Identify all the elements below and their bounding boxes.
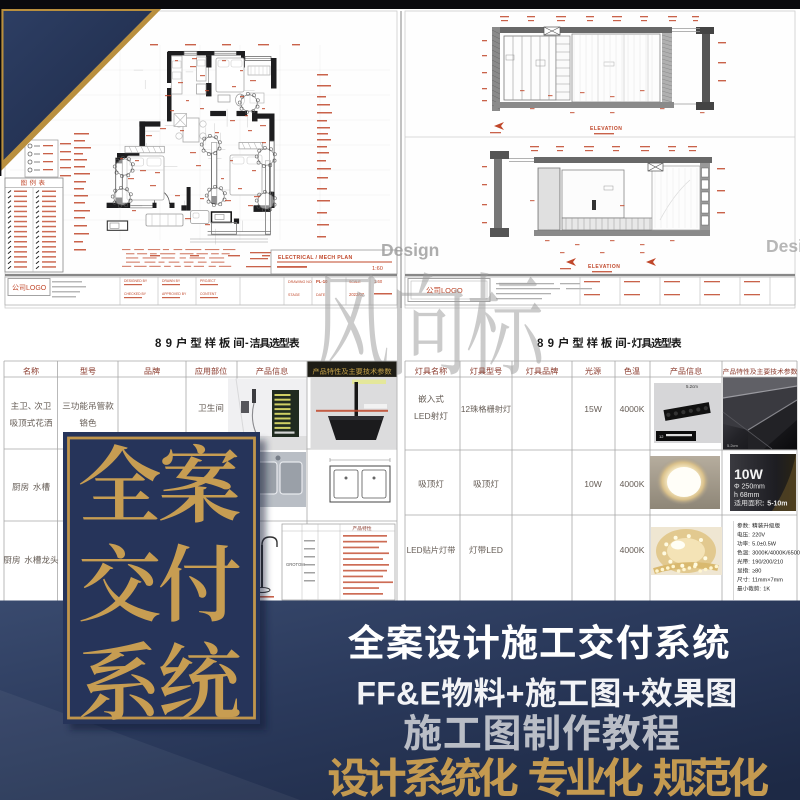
svg-text:Desi: Desi xyxy=(766,236,800,256)
svg-text:5-10m: 5-10m xyxy=(767,501,787,508)
svg-text:4000K: 4000K xyxy=(620,545,645,555)
svg-text:LOGO: LOGO xyxy=(26,285,47,292)
svg-text:LED: LED xyxy=(414,411,431,421)
svg-text:89: 89 xyxy=(537,338,558,350)
svg-text:15W: 15W xyxy=(584,404,603,414)
svg-text:+: + xyxy=(506,676,525,712)
svg-text:-: - xyxy=(627,337,631,349)
svg-text:Design: Design xyxy=(381,240,439,260)
svg-text:5.0±0.5W: 5.0±0.5W xyxy=(752,542,777,548)
svg-text:1K: 1K xyxy=(763,587,770,593)
svg-text:DATE: DATE xyxy=(316,293,326,297)
svg-text:1:60: 1:60 xyxy=(372,266,383,272)
svg-text:FF&E: FF&E xyxy=(356,676,441,712)
svg-text:5.2cm: 5.2cm xyxy=(686,384,698,389)
svg-text:≥80: ≥80 xyxy=(752,569,761,575)
svg-text:CONTENT: CONTENT xyxy=(200,292,216,296)
svg-text:220V: 220V xyxy=(752,533,765,539)
svg-text:3000K/4000K/6500K: 3000K/4000K/6500K xyxy=(752,551,800,557)
svg-text:+: + xyxy=(622,676,641,712)
svg-text:4000K: 4000K xyxy=(620,479,645,489)
svg-text:11mm×7mm: 11mm×7mm xyxy=(752,578,783,584)
svg-text:ELEVATION: ELEVATION xyxy=(588,264,620,270)
svg-text:12: 12 xyxy=(659,434,664,439)
svg-text:4000K: 4000K xyxy=(620,404,645,414)
svg-text:STAGE: STAGE xyxy=(288,293,301,297)
svg-text:89: 89 xyxy=(155,338,176,350)
svg-text:Φ 250mm: Φ 250mm xyxy=(734,484,765,491)
svg-text:GROTOM: GROTOM xyxy=(286,562,305,567)
svg-text:APPROVED BY: APPROVED BY xyxy=(162,292,187,296)
svg-text:DESIGNED BY: DESIGNED BY xyxy=(124,279,148,283)
svg-text:12: 12 xyxy=(461,405,471,414)
svg-text:CHECKED BY: CHECKED BY xyxy=(124,292,147,296)
svg-text::: : xyxy=(762,501,764,508)
svg-text:PROJECT: PROJECT xyxy=(200,279,216,283)
svg-text:LED: LED xyxy=(407,546,423,555)
svg-text:h 68mm: h 68mm xyxy=(734,492,759,499)
svg-text:190/200/210: 190/200/210 xyxy=(752,560,783,566)
svg-text:10W: 10W xyxy=(734,466,764,482)
svg-text:-: - xyxy=(245,337,249,349)
svg-text:DRAWING NO: DRAWING NO xyxy=(288,280,312,284)
svg-text:ELEVATION: ELEVATION xyxy=(590,126,622,132)
svg-text:ELECTRICAL / MECH PLAN: ELECTRICAL / MECH PLAN xyxy=(278,255,353,261)
svg-text:LED: LED xyxy=(486,545,503,555)
svg-text:DRAWN BY: DRAWN BY xyxy=(162,279,181,283)
svg-text:5.2cm: 5.2cm xyxy=(727,443,739,448)
svg-text:10W: 10W xyxy=(584,479,603,489)
